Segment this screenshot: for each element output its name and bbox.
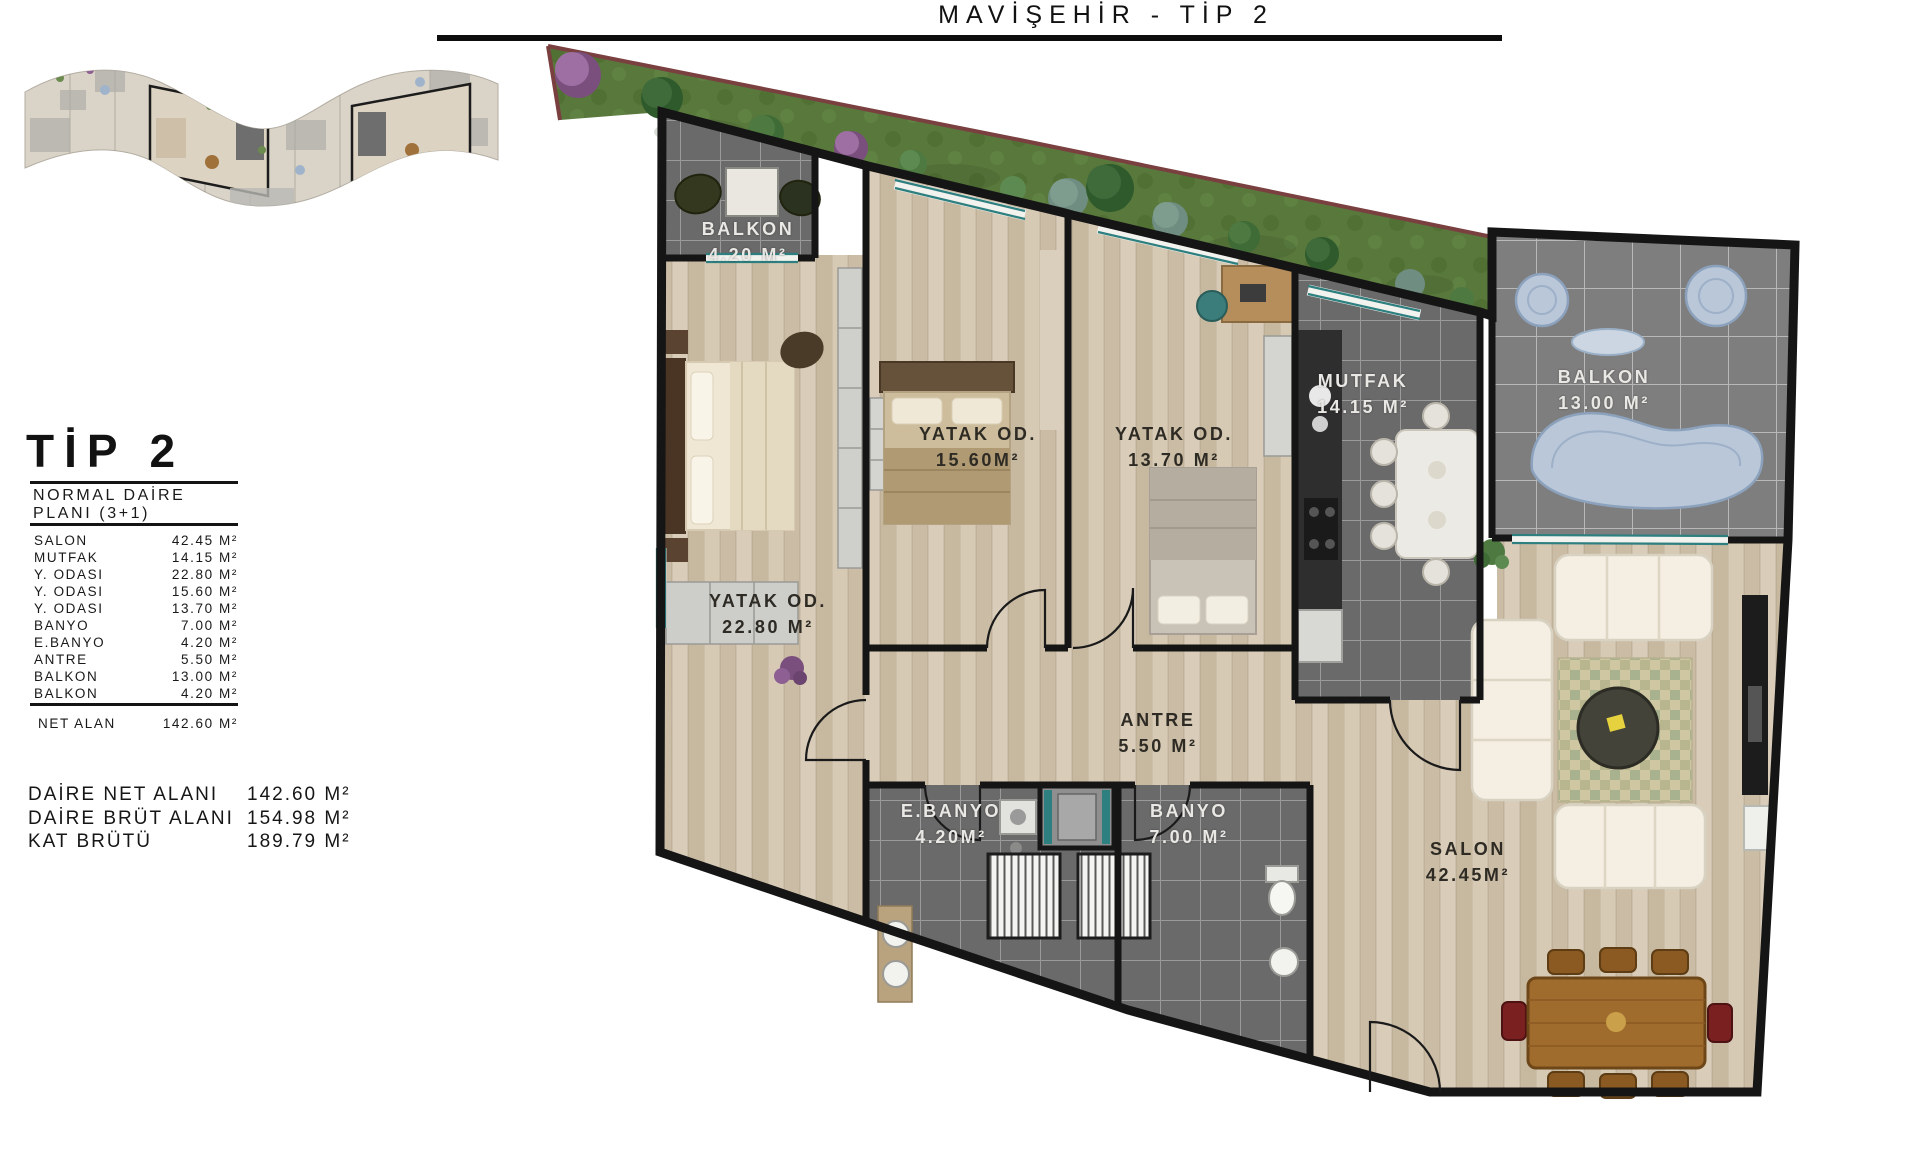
total-label: DAİRE NET ALANI: [28, 783, 247, 807]
room-label: BALKON: [34, 685, 98, 702]
room-label: BANYO: [34, 617, 89, 634]
room-label-balkon-large: BALKON 13.00 M²: [1558, 364, 1651, 416]
wardrobe: [1264, 336, 1292, 456]
dining-chair: [1548, 950, 1584, 974]
sofa: [1555, 805, 1705, 888]
net-area-label: NET ALAN: [38, 716, 116, 731]
plan-subtitle-line1: NORMAL DAİRE: [33, 487, 185, 505]
divider: [30, 523, 238, 526]
room-label: ANTRE: [34, 651, 88, 668]
pillow: [1206, 596, 1248, 624]
radiator: [988, 854, 1060, 938]
desk-chair: [1197, 291, 1227, 321]
room-name: ANTRE: [1118, 707, 1197, 733]
room-label: BALKON: [34, 668, 98, 685]
room-label: MUTFAK: [34, 549, 98, 566]
washbasin: [883, 961, 909, 987]
sofa: [1555, 555, 1712, 640]
table-row: BALKON13.00 M²: [34, 668, 238, 685]
radiator: [1078, 854, 1150, 938]
room-area: 22.80 M²: [709, 614, 827, 640]
room-name: BALKON: [702, 216, 795, 242]
wardrobe: [838, 268, 862, 568]
table-row: MUTFAK14.15 M²: [34, 549, 238, 566]
room-area: 14.15 M²: [172, 549, 238, 566]
pillow: [691, 372, 713, 440]
nightstand: [664, 538, 688, 562]
room-label-yatak-1560: YATAK OD. 15.60M²: [919, 421, 1037, 473]
room-name: MUTFAK: [1317, 368, 1409, 394]
pillow: [1158, 596, 1200, 624]
dining-chair: [1652, 950, 1688, 974]
room-area: 15.60 M²: [172, 583, 238, 600]
room-area: 4.20M²: [901, 824, 1001, 850]
bed-headboard: [880, 362, 1014, 392]
room-area: 4.20 M²: [181, 685, 238, 702]
totals-block: DAİRE NET ALANI142.60 M² DAİRE BRÜT ALAN…: [28, 783, 351, 854]
room-label: Y. ODASI: [34, 600, 104, 617]
room-name: YATAK OD.: [1115, 421, 1233, 447]
room-name: YATAK OD.: [919, 421, 1037, 447]
room-area: 14.15 M²: [1317, 394, 1409, 420]
room-label-mutfak: MUTFAK 14.15 M²: [1317, 368, 1409, 420]
floor-plan-page: { "title": "MAVİŞEHİR - TİP 2", "info_pa…: [0, 0, 1920, 1153]
plan-type-heading: TİP 2: [26, 424, 185, 478]
table-row: Y. ODASI15.60 M²: [34, 583, 238, 600]
pouf: [1686, 266, 1746, 326]
laptop: [1240, 284, 1266, 302]
room-name: SALON: [1426, 836, 1510, 862]
room-name: YATAK OD.: [709, 588, 827, 614]
room-label: Y. ODASI: [34, 583, 104, 600]
room-label: E.BANYO: [34, 634, 105, 651]
oval-table: [1572, 329, 1644, 355]
room-area: 42.45M²: [1426, 862, 1510, 888]
table-row: ANTRE5.50 M²: [34, 651, 238, 668]
building-overview-plan: [25, 56, 498, 215]
room-label-yatak-2280: YATAK OD. 22.80 M²: [709, 588, 827, 640]
room-area: 13.00 M²: [172, 668, 238, 685]
room-name: BALKON: [1558, 364, 1651, 390]
table-row: BANYO7.00 M²: [34, 617, 238, 634]
curtain: [1040, 250, 1062, 430]
room-area: 5.50 M²: [181, 651, 238, 668]
net-area-value: 142.60 M²: [163, 716, 238, 731]
shower: [1040, 786, 1114, 848]
total-row: DAİRE BRÜT ALANI154.98 M²: [28, 807, 351, 831]
room-name: E.BANYO: [901, 798, 1001, 824]
curved-sofa: [1532, 413, 1763, 508]
room-label-balkon-small: BALKON 4.20 M²: [702, 216, 795, 268]
room-area: 42.45 M²: [172, 532, 238, 549]
table-row: Y. ODASI22.80 M²: [34, 566, 238, 583]
dining-chair-red: [1708, 1004, 1732, 1042]
room-label-yatak-1370: YATAK OD. 13.70 M²: [1115, 421, 1233, 473]
room-area: 13.70 M²: [1115, 447, 1233, 473]
room-area: 13.00 M²: [1558, 390, 1651, 416]
total-value: 189.79 M²: [247, 830, 351, 854]
total-value: 154.98 M²: [247, 807, 351, 831]
nightstand: [664, 330, 688, 354]
page-title: MAVİŞEHİR - TİP 2: [938, 1, 1274, 30]
chair: [1423, 403, 1449, 429]
room-area-table: SALON42.45 M² MUTFAK14.15 M² Y. ODASI22.…: [34, 532, 238, 702]
divider: [30, 481, 238, 484]
table-row: BALKON4.20 M²: [34, 685, 238, 702]
net-area-row: NET ALAN 142.60 M²: [38, 716, 238, 731]
chair: [1371, 439, 1397, 465]
floor-plan-graphic: [0, 0, 1920, 1153]
dining-table-kitchen: [1396, 430, 1478, 558]
total-value: 142.60 M²: [247, 783, 351, 807]
duvet: [1150, 468, 1256, 560]
sofa: [1472, 620, 1552, 800]
chair: [1371, 481, 1397, 507]
room-label-banyo: BANYO 7.00 M²: [1149, 798, 1228, 850]
total-row: DAİRE NET ALANI142.60 M²: [28, 783, 351, 807]
table-row: Y. ODASI13.70 M²: [34, 600, 238, 617]
balcony-table: [726, 168, 778, 216]
total-label: KAT BRÜTÜ: [28, 830, 247, 854]
title-underline: [437, 35, 1502, 41]
total-row: KAT BRÜTÜ189.79 M²: [28, 830, 351, 854]
room-label-salon: SALON 42.45M²: [1426, 836, 1510, 888]
total-label: DAİRE BRÜT ALANI: [28, 807, 247, 831]
centerpiece: [1606, 1012, 1626, 1032]
room-area: 13.70 M²: [172, 600, 238, 617]
room-label-antre: ANTRE 5.50 M²: [1118, 707, 1197, 759]
washbasin: [1270, 948, 1298, 976]
dining-chair-red: [1502, 1002, 1526, 1040]
chair: [1371, 523, 1397, 549]
duvet: [730, 362, 794, 530]
table-row: E.BANYO4.20 M²: [34, 634, 238, 651]
room-label: SALON: [34, 532, 88, 549]
plan-subtitle-line2: PLANI (3+1): [33, 505, 150, 523]
room-area: 7.00 M²: [181, 617, 238, 634]
overview-highlighted-unit-left: [150, 86, 268, 196]
pillow: [691, 456, 713, 524]
room-area: 4.20 M²: [702, 242, 795, 268]
pouf: [1516, 274, 1568, 326]
fridge: [1298, 610, 1342, 662]
dining-chair: [1600, 948, 1636, 972]
cooktop: [1304, 498, 1338, 560]
bed-headboard: [664, 358, 686, 534]
room-area: 15.60M²: [919, 447, 1037, 473]
toilet: [1266, 866, 1298, 915]
room-area: 5.50 M²: [1118, 733, 1197, 759]
room-name: BANYO: [1149, 798, 1228, 824]
chair: [1423, 559, 1449, 585]
table-row: SALON42.45 M²: [34, 532, 238, 549]
room-area: 7.00 M²: [1149, 824, 1228, 850]
room-label: Y. ODASI: [34, 566, 104, 583]
room-area: 4.20 M²: [181, 634, 238, 651]
room-area: 22.80 M²: [172, 566, 238, 583]
divider: [30, 703, 238, 706]
room-label-ebanyo: E.BANYO 4.20M²: [901, 798, 1001, 850]
